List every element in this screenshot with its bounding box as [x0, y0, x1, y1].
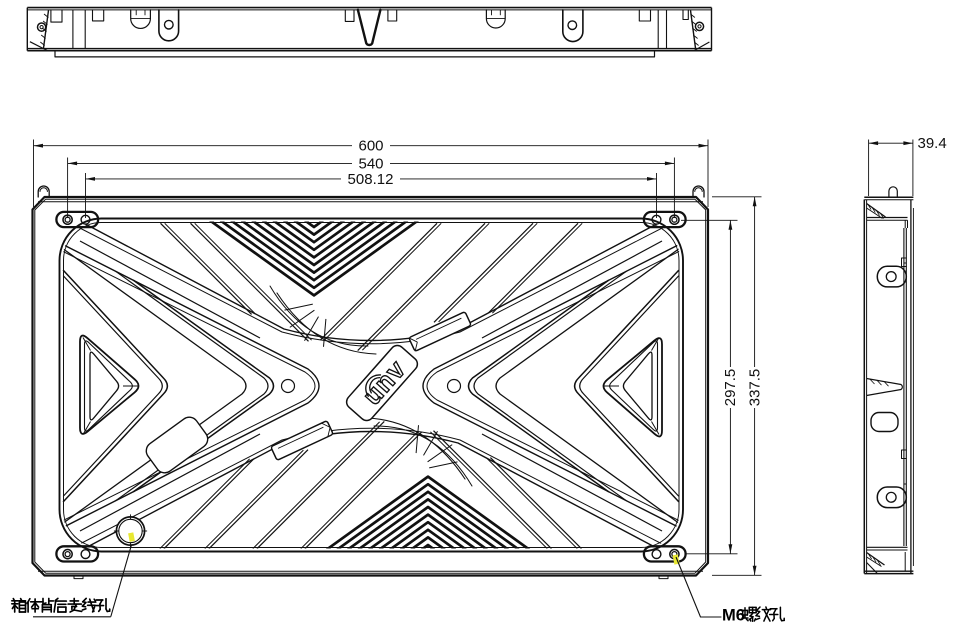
svg-text:600: 600: [358, 138, 383, 155]
svg-text:297.5: 297.5: [722, 369, 739, 407]
svg-text:337.5: 337.5: [746, 369, 763, 407]
svg-text:M6: M6: [722, 607, 745, 625]
svg-text:39.4: 39.4: [918, 135, 947, 152]
svg-text:540: 540: [358, 155, 383, 172]
svg-text:508.12: 508.12: [348, 171, 394, 188]
